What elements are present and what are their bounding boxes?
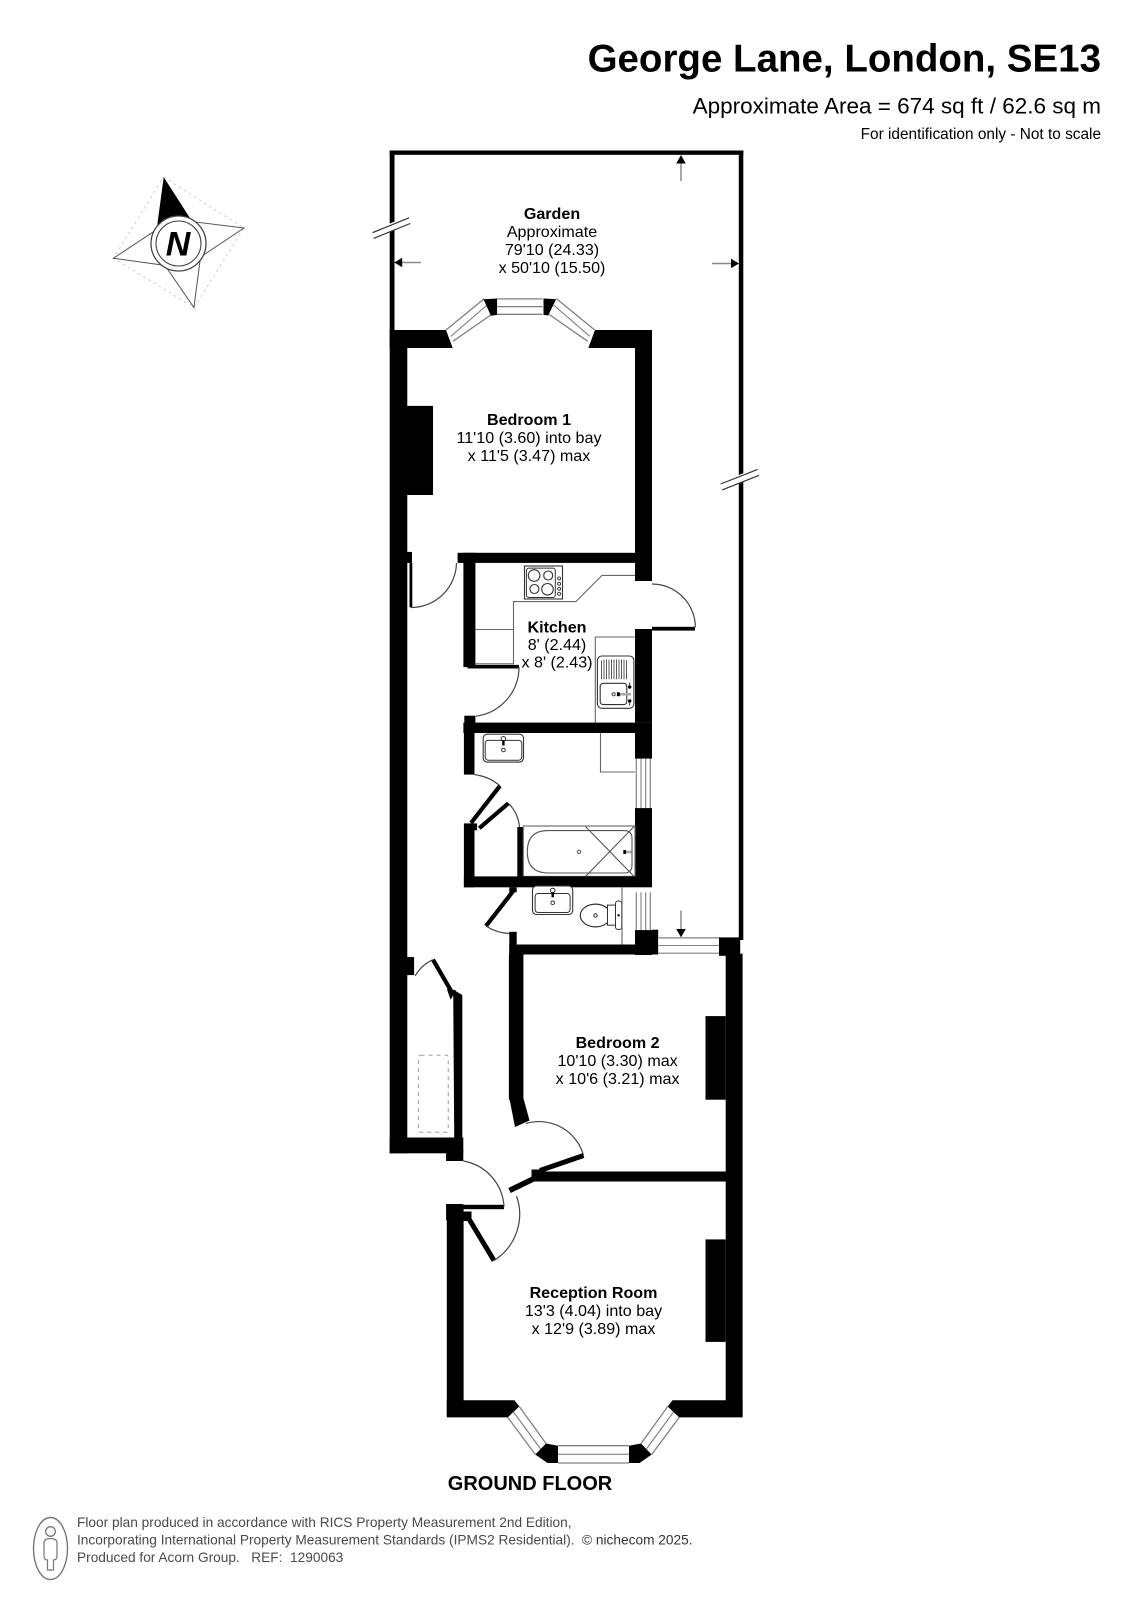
svg-text:10'10 (3.30) max: 10'10 (3.30) max [557, 1052, 677, 1070]
svg-text:Produced for Acorn Group. RE: Produced for Acorn Group. REF: 1290063 [77, 1550, 344, 1565]
svg-text:x 8' (2.43): x 8' (2.43) [521, 654, 592, 672]
svg-text:Reception Room: Reception Room [530, 1284, 658, 1302]
svg-text:Floor plan produced in accorda: Floor plan produced in accordance with R… [77, 1515, 572, 1530]
svg-text:13'3 (4.04) into bay: 13'3 (4.04) into bay [525, 1302, 663, 1320]
svg-text:8' (2.44): 8' (2.44) [528, 636, 587, 654]
svg-text:x 11'5 (3.47) max: x 11'5 (3.47) max [468, 447, 591, 465]
svg-text:GROUND FLOOR: GROUND FLOOR [448, 1473, 613, 1495]
svg-text:George Lane, London, SE13: George Lane, London, SE13 [588, 38, 1101, 81]
svg-text:© nichecom 2025.: © nichecom 2025. [582, 1533, 693, 1548]
svg-text:Garden: Garden [524, 205, 580, 223]
svg-text:x 12'9 (3.89) max: x 12'9 (3.89) max [532, 1320, 656, 1338]
svg-text:Kitchen: Kitchen [527, 619, 586, 637]
svg-text:Approximate Area = 674 sq ft /: Approximate Area = 674 sq ft / 62.6 sq m [693, 94, 1101, 119]
svg-text:Bedroom 2: Bedroom 2 [576, 1034, 660, 1052]
svg-text:Incorporating International Pr: Incorporating International Property Mea… [77, 1533, 575, 1548]
svg-text:N: N [166, 226, 192, 264]
svg-text:For identification only - Not: For identification only - Not to scale [861, 126, 1101, 143]
svg-text:11'10 (3.60) into bay: 11'10 (3.60) into bay [456, 429, 602, 447]
svg-text:Bedroom 1: Bedroom 1 [487, 411, 571, 429]
svg-text:x 50'10 (15.50): x 50'10 (15.50) [499, 259, 606, 277]
svg-text:x 10'6 (3.21) max: x 10'6 (3.21) max [556, 1070, 680, 1088]
svg-text:79'10 (24.33): 79'10 (24.33) [505, 241, 599, 259]
svg-text:Approximate: Approximate [507, 223, 597, 241]
